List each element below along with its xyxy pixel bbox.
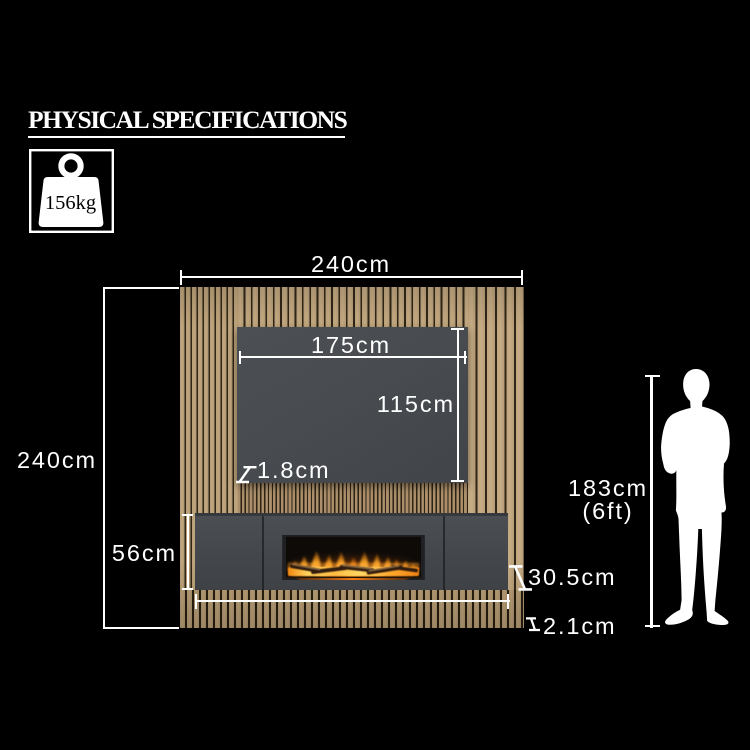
svg-text:156kg: 156kg [45,192,96,214]
